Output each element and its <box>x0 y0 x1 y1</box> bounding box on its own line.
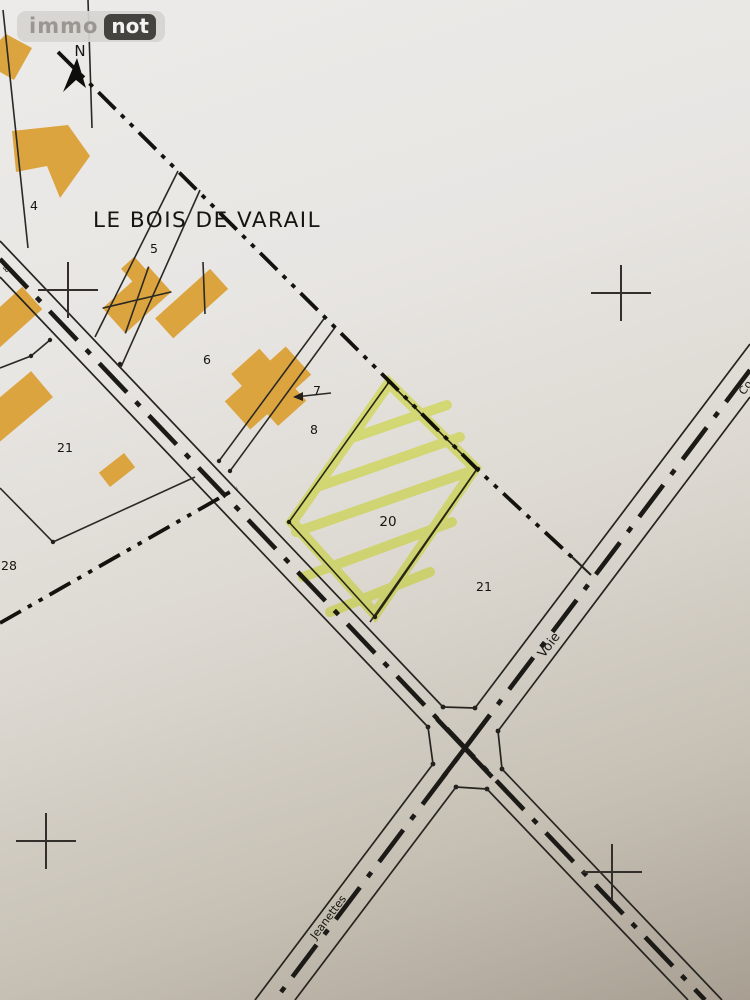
road-b-edges <box>255 344 750 1000</box>
parcel-label-7: 7 <box>313 383 321 398</box>
street-label-edge-partial: Co <box>736 378 750 398</box>
survey-cross-2 <box>591 265 651 321</box>
north-label: N <box>74 42 85 60</box>
parcel-label-21-left: 21 <box>57 440 73 455</box>
survey-cross-4 <box>582 844 642 900</box>
logo-immo-text: immo <box>29 16 98 37</box>
building-small <box>99 453 135 487</box>
building-parcel4 <box>12 125 90 198</box>
parcel-label-20: 20 <box>379 514 396 530</box>
parcel-label-28: 28 <box>1 558 17 573</box>
cadastral-map-photo: immo not <box>0 0 750 1000</box>
parcel-label-5: 5 <box>150 241 158 256</box>
logo-not-badge: not <box>104 14 156 40</box>
cadastral-map-canvas: N LE BOIS DE VARAIL 4 5 6 7 8 20 21 21 2… <box>0 0 750 1000</box>
building-long <box>155 269 228 339</box>
building-plus <box>214 335 322 442</box>
road-axis-lines <box>0 259 750 1000</box>
parcel-label-8: 8 <box>310 422 318 437</box>
tiny-label-8: 8 <box>1 264 11 274</box>
immonot-logo: immo not <box>17 11 165 42</box>
boundary-layer <box>0 52 575 623</box>
survey-cross-1 <box>38 262 98 318</box>
parcel-label-6: 6 <box>203 352 211 367</box>
street-label-voie: Voie <box>535 630 564 661</box>
survey-cross-3 <box>16 813 76 869</box>
building-left-upper <box>0 287 42 349</box>
buildings-layer <box>0 34 322 487</box>
building-left-lower <box>0 371 53 442</box>
highlight-parcel-20 <box>292 383 475 614</box>
parcel-label-21-right: 21 <box>476 579 492 594</box>
north-arrow: N <box>63 42 86 92</box>
road-a-edges <box>0 241 722 1000</box>
street-label-jeanettes: Jeanettes <box>307 893 349 943</box>
area-name-label: LE BOIS DE VARAIL <box>93 208 321 233</box>
parcel-label-4: 4 <box>30 198 38 213</box>
